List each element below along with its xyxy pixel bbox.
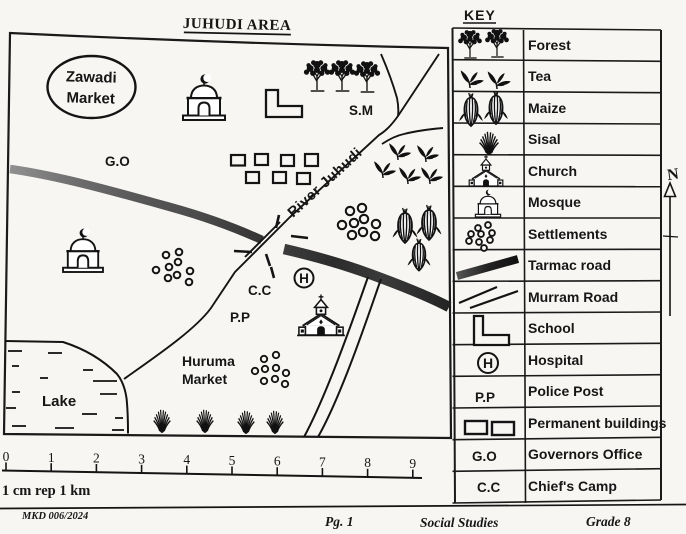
- svg-text:8: 8: [364, 455, 371, 470]
- svg-text:Social Studies: Social Studies: [420, 515, 498, 530]
- svg-text:Sisal: Sisal: [528, 131, 561, 147]
- svg-text:0: 0: [3, 449, 10, 464]
- svg-text:C.C: C.C: [248, 283, 272, 298]
- svg-text:Tarmac road: Tarmac road: [528, 257, 611, 273]
- svg-text:7: 7: [319, 455, 326, 470]
- svg-text:Zawadi: Zawadi: [66, 68, 117, 86]
- svg-text:1 cm rep 1 km: 1 cm rep 1 km: [2, 483, 90, 499]
- svg-text:Murram Road: Murram Road: [528, 289, 618, 305]
- svg-text:C.C: C.C: [477, 480, 501, 495]
- svg-text:G.O: G.O: [105, 154, 130, 169]
- svg-text:3: 3: [138, 451, 145, 466]
- svg-text:Permanent buildings: Permanent buildings: [528, 415, 667, 431]
- svg-text:Hospital: Hospital: [528, 352, 583, 368]
- svg-text:9: 9: [409, 456, 416, 471]
- svg-text:2: 2: [93, 451, 100, 466]
- svg-text:JUHUDI AREA: JUHUDI AREA: [183, 16, 292, 34]
- svg-text:5: 5: [229, 453, 236, 468]
- svg-text:Market: Market: [66, 89, 115, 107]
- svg-text:MKD 006/2024: MKD 006/2024: [21, 511, 88, 522]
- svg-text:Market: Market: [182, 371, 227, 387]
- svg-text:G.O: G.O: [472, 449, 497, 464]
- svg-text:6: 6: [274, 454, 281, 469]
- svg-text:KEY: KEY: [464, 7, 496, 23]
- svg-text:S.M: S.M: [349, 103, 373, 118]
- svg-text:N: N: [666, 166, 680, 185]
- svg-text:Forest: Forest: [528, 37, 571, 53]
- svg-text:Settlements: Settlements: [528, 226, 608, 242]
- svg-text:P.P: P.P: [475, 390, 495, 405]
- svg-text:H: H: [483, 355, 493, 371]
- svg-text:Tea: Tea: [528, 68, 551, 84]
- svg-text:Chief's Camp: Chief's Camp: [528, 478, 617, 494]
- svg-text:Governors Office: Governors Office: [528, 446, 643, 462]
- svg-text:Church: Church: [528, 163, 577, 179]
- svg-text:Huruma: Huruma: [182, 353, 235, 369]
- svg-text:School: School: [528, 320, 575, 336]
- svg-text:Grade 8: Grade 8: [586, 514, 631, 529]
- svg-text:Police Post: Police Post: [528, 383, 604, 399]
- svg-text:Pg. 1: Pg. 1: [325, 514, 354, 529]
- svg-text:Lake: Lake: [42, 393, 76, 410]
- svg-text:Maize: Maize: [528, 100, 566, 116]
- svg-text:4: 4: [183, 452, 190, 467]
- svg-text:H: H: [299, 271, 309, 286]
- svg-text:1: 1: [48, 450, 55, 465]
- svg-text:P.P: P.P: [230, 310, 250, 325]
- svg-text:Mosque: Mosque: [528, 194, 581, 210]
